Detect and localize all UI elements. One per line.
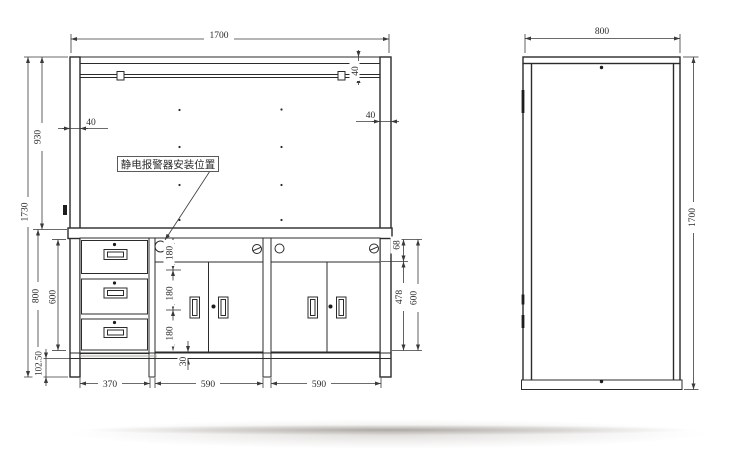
dim-side-depth: 800 xyxy=(525,24,680,39)
dim-door-height: 478 xyxy=(393,262,405,351)
middle-leg-right xyxy=(263,238,271,377)
svg-text:1700: 1700 xyxy=(688,208,698,227)
dim-base-height: 102.50 xyxy=(33,347,47,386)
side-top-hole xyxy=(600,66,603,69)
dim-overall-height: 1730 xyxy=(19,57,31,377)
svg-text:590: 590 xyxy=(312,380,327,390)
svg-text:478: 478 xyxy=(395,290,405,305)
dim-lamp-rail-offset: 40 xyxy=(350,50,362,85)
drawer-1-lock xyxy=(113,243,116,246)
svg-text:930: 930 xyxy=(34,130,44,145)
svg-text:370: 370 xyxy=(103,380,118,390)
svg-text:590: 590 xyxy=(201,380,216,390)
svg-text:800: 800 xyxy=(32,289,42,304)
svg-text:1730: 1730 xyxy=(21,202,31,221)
svg-text:102.50: 102.50 xyxy=(34,351,44,376)
svg-text:180: 180 xyxy=(166,326,176,341)
dim-apron-height: 68 xyxy=(391,237,404,262)
dim-left-cabinet-width: 590 xyxy=(155,378,263,391)
worktop xyxy=(68,228,392,239)
drawing-canvas: 静电报警器安装位置 1700 1730 xyxy=(0,0,750,465)
workbench-drawing: 静电报警器安装位置 1700 1730 xyxy=(0,0,750,465)
svg-text:600: 600 xyxy=(410,291,420,306)
lamp-rail xyxy=(80,72,380,81)
svg-text:180: 180 xyxy=(166,286,176,301)
drawer-2-lock xyxy=(113,281,116,284)
cabinet2-hole xyxy=(275,244,284,253)
side-view: 800 1700 xyxy=(522,24,699,390)
screw-head-2 xyxy=(370,244,379,253)
side-top-band xyxy=(523,57,680,64)
dim-side-height: 1700 xyxy=(686,57,698,390)
rail-hook-right xyxy=(338,72,345,81)
svg-text:1700: 1700 xyxy=(210,31,229,41)
top-beam xyxy=(70,57,391,64)
dim-right-post-width: 40 xyxy=(356,111,399,122)
drawer-3-lock xyxy=(113,321,116,324)
cabinet-2 xyxy=(271,262,380,352)
svg-text:40: 40 xyxy=(86,118,96,128)
rail-hook-left xyxy=(117,72,124,81)
svg-text:600: 600 xyxy=(49,290,59,305)
svg-text:68: 68 xyxy=(393,240,403,250)
dim-overall-width: 1700 xyxy=(71,29,389,41)
svg-text:800: 800 xyxy=(595,27,610,37)
side-bottom-hole xyxy=(600,380,603,383)
cabinet1-lock xyxy=(212,305,216,309)
front-view xyxy=(63,57,392,377)
dim-upper-height: 930 xyxy=(32,57,44,230)
svg-text:40: 40 xyxy=(351,66,361,76)
dim-left-post-width: 40 xyxy=(58,118,108,129)
dim-side-hole-pitches: 180 180 180 xyxy=(164,238,176,351)
floor-shadow xyxy=(68,419,708,449)
screw-head-1 xyxy=(253,245,262,254)
cabinet2-lock xyxy=(329,305,333,309)
dim-cabinet-height: 600 xyxy=(408,240,420,351)
svg-text:40: 40 xyxy=(366,111,376,121)
dim-drawer-stack-height: 600 xyxy=(47,240,59,351)
side-walls xyxy=(523,64,680,381)
side-extension-lines xyxy=(525,34,699,390)
alarm-label-text: 静电报警器安装位置 xyxy=(121,158,216,171)
drawer-unit xyxy=(80,238,149,354)
right-post xyxy=(380,57,391,377)
svg-text:30: 30 xyxy=(179,357,189,367)
left-post-hinge-mark xyxy=(63,205,67,215)
dim-drawer-unit-width: 370 xyxy=(80,378,150,391)
left-post xyxy=(70,57,80,377)
svg-text:180: 180 xyxy=(166,246,176,261)
dim-right-cabinet-width: 590 xyxy=(271,378,381,391)
